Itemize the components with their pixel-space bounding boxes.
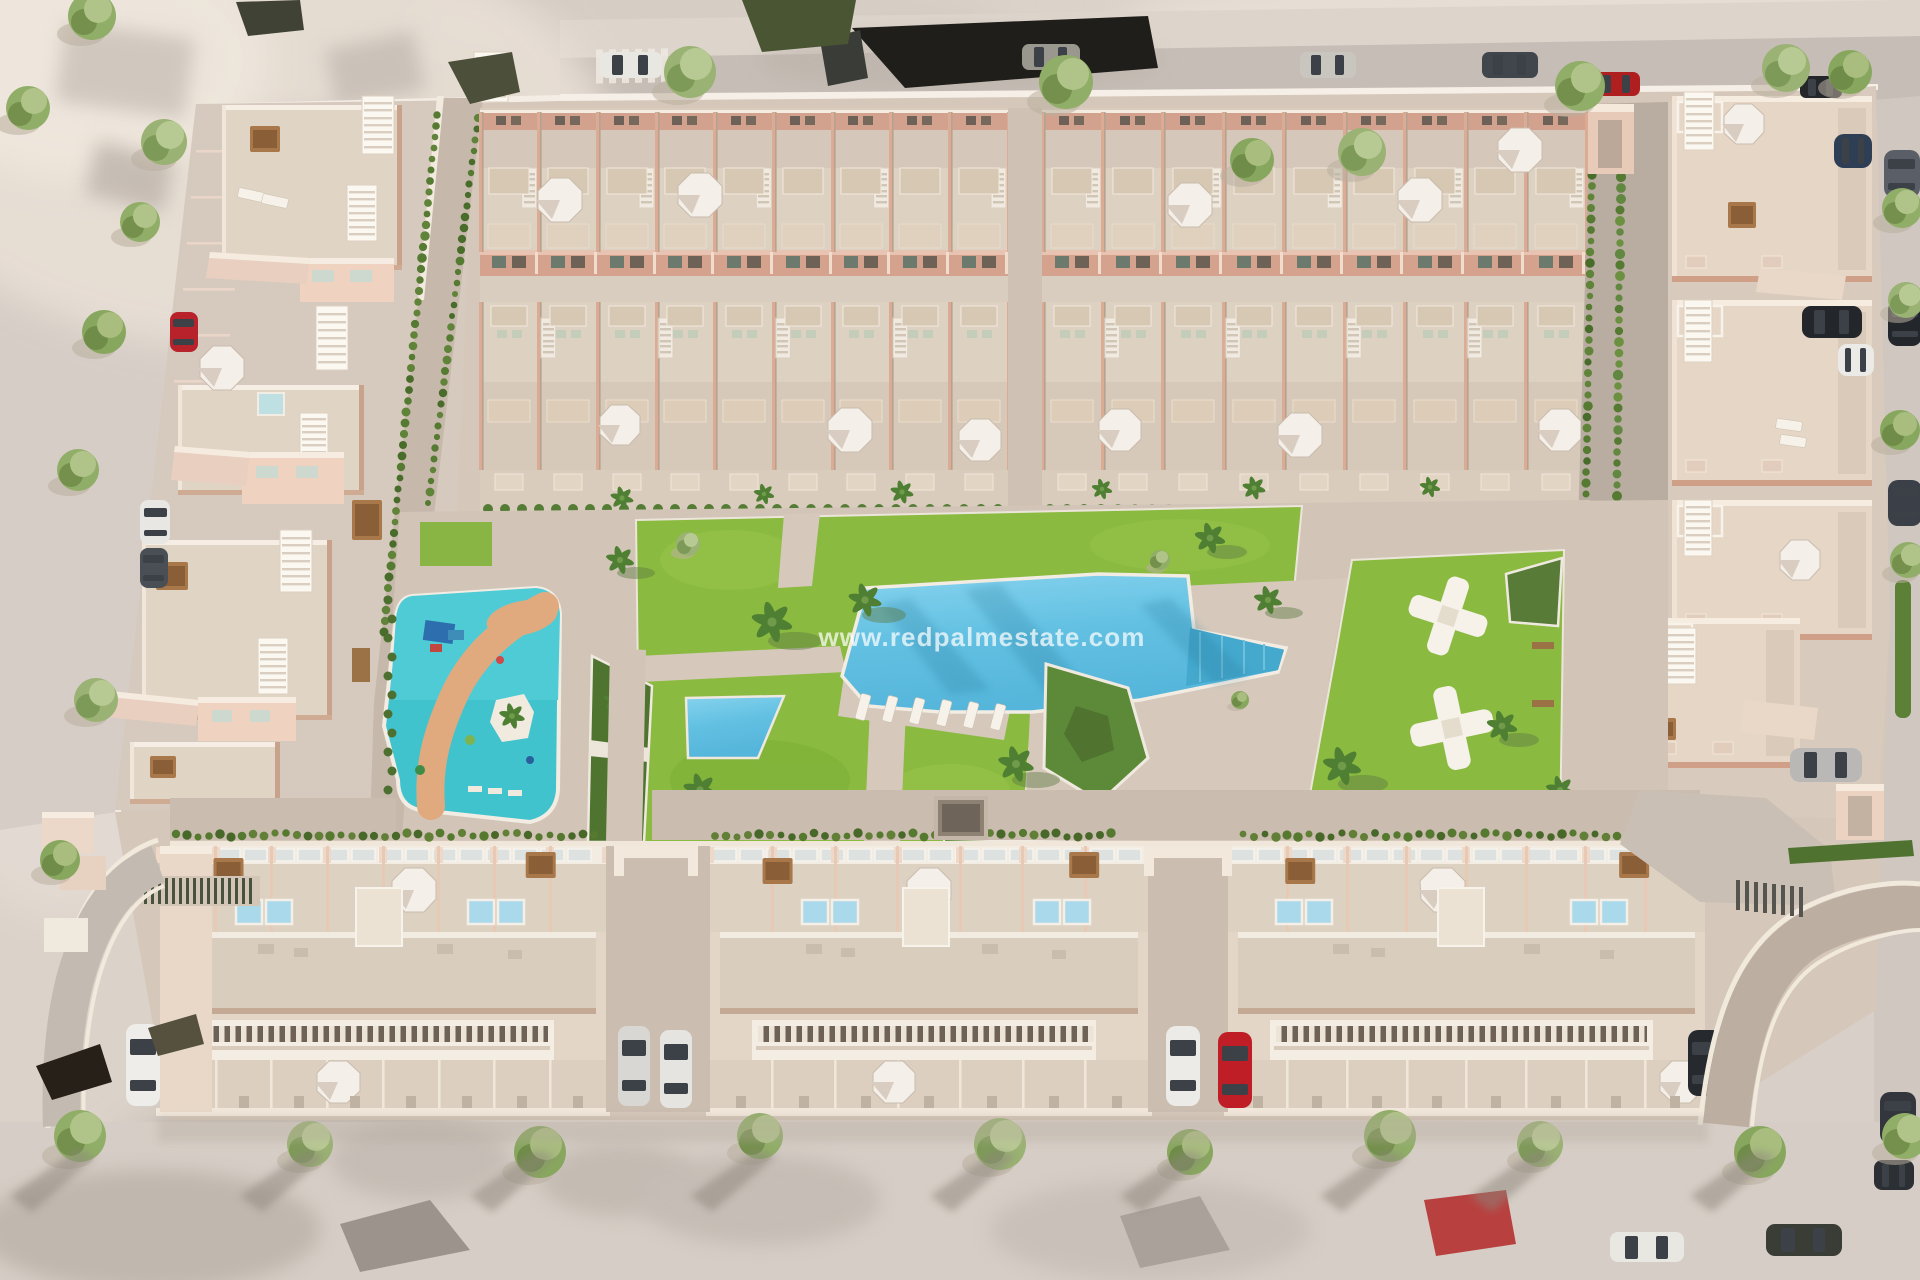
svg-text:www.redpalmestate.com: www.redpalmestate.com xyxy=(817,622,1145,652)
